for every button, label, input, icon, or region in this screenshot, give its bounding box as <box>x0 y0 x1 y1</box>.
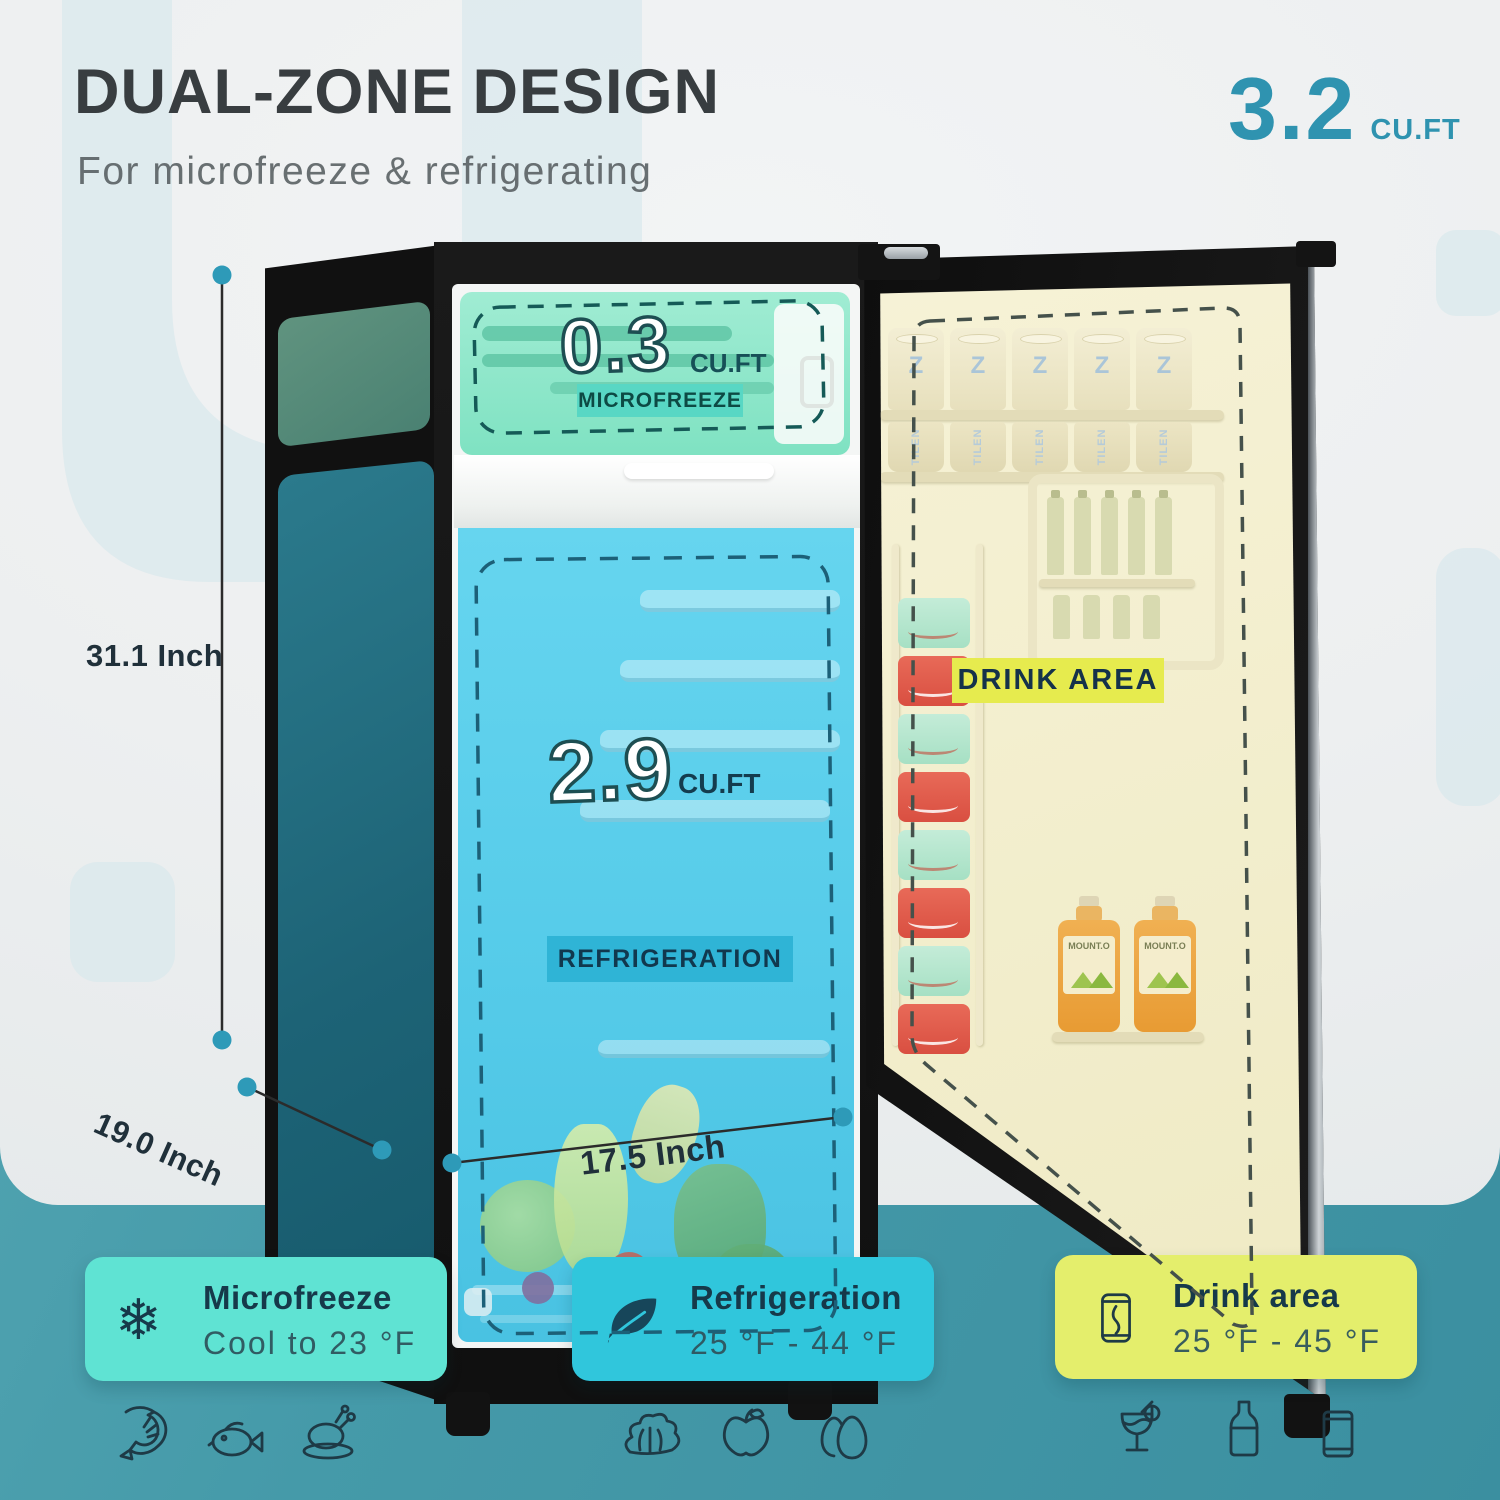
page-subtitle: For microfreeze & refrigerating <box>77 150 652 194</box>
product-infographic: DUAL-ZONE DESIGN For microfreeze & refri… <box>0 0 1500 1500</box>
freezer-capacity-unit: CU.FT <box>690 348 767 379</box>
fresh-capacity-unit: CU.FT <box>678 768 760 800</box>
height-dimension-label: 31.1 Inch <box>86 638 223 674</box>
small-can <box>1143 595 1160 639</box>
refrigeration-chip: REFRIGERATION <box>547 936 793 982</box>
cola-can <box>898 830 970 880</box>
door-can: Z <box>950 328 1006 410</box>
door-can: Z <box>888 328 944 410</box>
small-bottle <box>1047 497 1064 575</box>
fridge-foot <box>446 1392 490 1436</box>
door-can: TILEN <box>950 422 1006 472</box>
juice-bottle: MOUNT.O <box>1058 896 1120 1032</box>
door-can: TILEN <box>1136 422 1192 472</box>
freezer-capacity-value: 0.3 <box>559 300 674 391</box>
card-drink-area: Drink area 25 °F - 45 °F <box>1055 1255 1417 1379</box>
hinge-pin <box>884 247 928 259</box>
card-title: Drink area <box>1173 1277 1339 1315</box>
snowflake-icon: ❄ <box>115 1289 177 1351</box>
card-subtitle: 25 °F - 45 °F <box>1173 1323 1381 1360</box>
beverage-can-icon <box>1306 1402 1370 1466</box>
door-top-cap <box>1296 241 1336 267</box>
microfreeze-chip: MICROFREEZE <box>577 384 743 417</box>
small-bottle <box>1155 497 1172 575</box>
door-shelf-rail <box>1039 579 1195 587</box>
apple-icon <box>714 1404 778 1468</box>
door-can: TILEN <box>888 422 944 472</box>
shrimp-icon <box>112 1402 176 1466</box>
card-title: Refrigeration <box>690 1279 902 1317</box>
card-microfreeze: ❄ Microfreeze Cool to 23 °F <box>85 1257 447 1381</box>
juice-bottle: MOUNT.O <box>1134 896 1196 1032</box>
door-shelf-rail <box>880 410 1224 420</box>
ice-cube <box>464 1288 492 1316</box>
card-refrigeration: Refrigeration 25 °F - 44 °F <box>572 1257 934 1381</box>
cocktail-icon <box>1108 1400 1172 1464</box>
capacity-value: 3.2 <box>1228 58 1356 160</box>
fridge-side-panel <box>265 244 448 1404</box>
cola-can <box>898 888 970 938</box>
plum <box>522 1272 554 1304</box>
fridge-shelf <box>620 660 840 682</box>
door-hinge <box>858 244 940 280</box>
fresh-capacity-value: 2.9 <box>546 720 675 823</box>
roast-chicken-icon <box>296 1402 360 1466</box>
cola-can <box>898 772 970 822</box>
refrigeration-zone <box>458 528 854 1342</box>
card-title: Microfreeze <box>203 1279 392 1317</box>
drink-area-chip: DRINK AREA <box>952 658 1164 703</box>
freezer-evaporator <box>774 304 844 444</box>
small-can <box>1083 595 1100 639</box>
door-can: Z <box>1136 328 1192 410</box>
fish-icon <box>204 1408 268 1472</box>
door-shelf-rail <box>1052 1032 1204 1042</box>
small-can <box>1053 595 1070 639</box>
door-can: Z <box>1012 328 1068 410</box>
leaf-icon <box>602 1289 664 1351</box>
cola-can <box>898 946 970 996</box>
shelf-divider <box>454 455 860 528</box>
door-can: TILEN <box>1074 422 1130 472</box>
cola-can <box>898 714 970 764</box>
capacity-unit: CU.FT <box>1370 114 1460 147</box>
side-panel-upper <box>278 301 430 448</box>
page-title: DUAL-ZONE DESIGN <box>74 56 720 128</box>
total-capacity: 3.2 CU.FT <box>1228 58 1461 160</box>
small-bottle <box>1074 497 1091 575</box>
eggs-icon <box>812 1404 876 1468</box>
door-can: TILEN <box>1012 422 1068 472</box>
side-panel-lower <box>278 460 434 1326</box>
drink-can-icon <box>1085 1287 1147 1349</box>
bottle-icon <box>1212 1398 1276 1462</box>
lettuce-icon <box>618 1406 682 1470</box>
small-bottle <box>1101 497 1118 575</box>
cola-can <box>898 1004 970 1054</box>
card-subtitle: Cool to 23 °F <box>203 1325 416 1362</box>
small-can <box>1113 595 1130 639</box>
door-bottle-compartment <box>1028 474 1224 670</box>
card-subtitle: 25 °F - 44 °F <box>690 1325 898 1362</box>
rack-wire <box>976 544 983 1046</box>
small-bottle <box>1128 497 1145 575</box>
fridge-shelf <box>598 1040 830 1058</box>
door-can: Z <box>1074 328 1130 410</box>
fridge-shelf <box>640 590 840 612</box>
cola-can <box>898 598 970 648</box>
